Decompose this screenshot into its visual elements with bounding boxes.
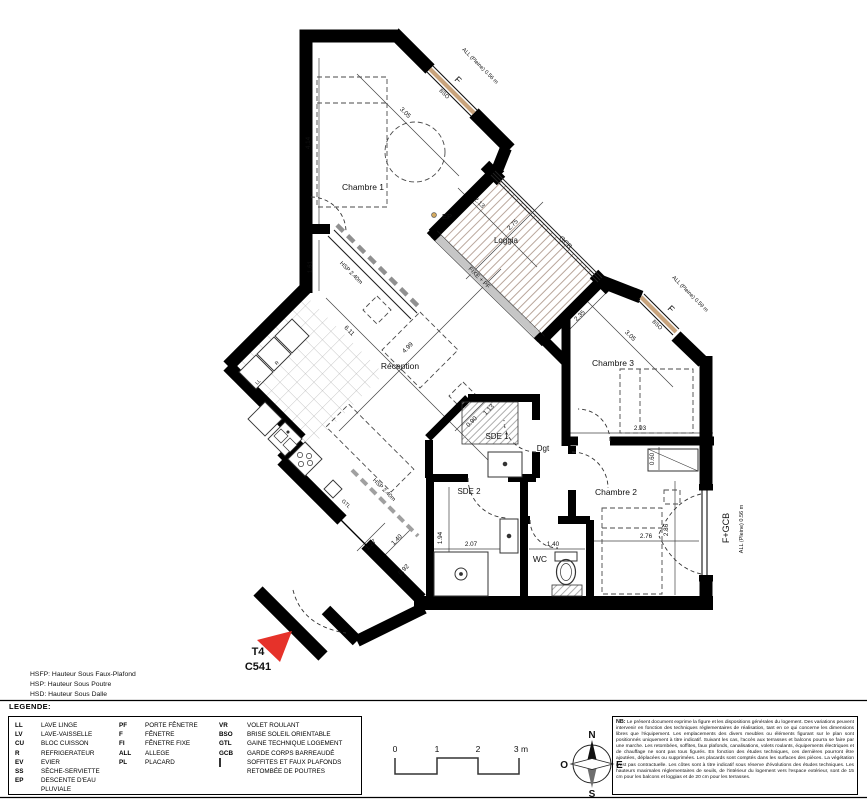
room-label-sde1: SDE 1 [485,432,509,441]
entry-door-threshold [341,520,366,545]
scale-tick-0: 0 [393,744,398,754]
chair-chambre1 [385,122,445,182]
legend-abbr: FI [119,739,145,748]
bed-chambre3 [620,369,693,433]
legend-label: FÊNETRE FIXE [145,739,190,748]
legend-label: SÈCHE-SERVIETTE [41,767,100,776]
wall-sw-4 [366,544,421,599]
legend-abbr: SS [15,767,41,776]
bed-chambre2 [602,508,662,594]
legend-row: SSSÈCHE-SERVIETTE [15,767,119,776]
chambre1-opening [328,225,420,319]
legend-row: SOFFITES ET FAUX PLAFONDS [219,758,361,767]
dim: 1.40 [390,533,404,547]
soffites-swatch [219,758,247,767]
dim: 2.93 [634,425,647,432]
legend-abbr: PF [119,721,145,730]
dim: 4.14 [305,136,312,149]
legend-row: PLPLACARD [119,758,219,767]
legend-abbr: EP [15,776,41,785]
hsd-note: HSD: Hauteur Sous Dalle [30,691,107,698]
room-label-reception: Réception [381,361,420,371]
chair-1 [363,296,391,324]
legend-label: BLOC CUISSON [41,739,89,748]
ep-label: EP [442,212,452,221]
toilet-wc [555,552,577,585]
legend-label: DESCENTE D'EAU [41,776,96,785]
window-label-f1: F [453,74,464,85]
room-label-chambre2: Chambre 2 [595,487,637,497]
legend-abbr: R [15,749,41,758]
legend-label: PLUVIALE [41,785,71,794]
bso-label-2: BSO [650,319,663,332]
allege-label-ch3: ALL (Pleine) 0.59 m [670,275,709,314]
dim: 0.92 [397,563,411,577]
legend-row: CUBLOC CUISSON [15,739,119,748]
legend-label: ALLEGE [145,749,170,758]
floorplan-drawing: Chambre 1 Loggia Réception Chambre 3 SDE… [0,0,867,800]
compass-s: S [589,789,596,800]
legend-row: GTLGAINE TECHNIQUE LOGEMENT [219,739,361,748]
allege-label-top: ALL (Pleine) 0.56 m [460,47,499,86]
dim: 3.05 [398,106,412,120]
legend-label: PLACARD [145,758,175,767]
legend-row: EPDESCENTE D'EAU [15,776,119,785]
unit-number: C541 [245,661,271,673]
legend-abbr: F [119,730,145,739]
room-label-dgt: Dgt [537,444,550,453]
nb-note-box: NB: Le présent document exprime la figur… [612,716,858,795]
legend-label: SOFFITES ET FAUX PLAFONDS [247,758,341,767]
dim: 3.05 [623,329,637,343]
compass-o: O [560,760,568,771]
legend-abbr: GCB [219,749,247,758]
legend-row: PFPORTE FÊNETRE [119,721,219,730]
legend-label: GARDE CORPS BARREAUDÉ [247,749,334,758]
legend-title: LEGENDE: [9,702,51,711]
wc-vent [552,585,582,596]
scale-tick-2: 2 [476,744,481,754]
legend-label: GAINE TECHNIQUE LOGEMENT [247,739,342,748]
dim: 1.94 [437,531,444,544]
legend-label: BRISE SOLEIL ORIENTABLE [247,730,331,739]
legend-row: LVLAVE-VAISSELLE [15,730,119,739]
legend-column-3: VRVOLET ROULANT BSOBRISE SOLEIL ORIENTAB… [219,721,361,795]
legend-column-1: LLLAVE LINGE LVLAVE-VAISSELLE CUBLOC CUI… [15,721,119,795]
legend-row: FFÊNETRE [119,730,219,739]
dim: 0.60 [649,452,656,465]
nb-text: Le présent document exprime la figure et… [616,720,854,780]
compass-n: N [588,730,595,741]
gtl-box [324,480,342,498]
nb-prefix: NB: [616,719,626,725]
legend-abbr: CU [15,739,41,748]
dim: 2.76 [640,533,653,540]
legend-abbr: LL [15,721,41,730]
legend-row: ALLALLEGE [119,749,219,758]
legend-abbr: EV [15,758,41,767]
legend-row: PLUVIALE [15,785,119,794]
dim: 1.61 [307,260,314,273]
unit-type: T4 [252,646,266,658]
beam-soffite-entry [352,470,418,536]
legend-row: RETOMBÉE DE POUTRES [219,767,361,776]
compass-needle-ew [571,759,613,770]
legend-label: REFRIGERATEUR [41,749,94,758]
window-label-f2: F [666,303,677,314]
legend-row: FIFÊNETRE FIXE [119,739,219,748]
nightstand [664,490,680,504]
hs-notes: HSFP: Hauteur Sous Faux-Plafond HSP: Hau… [30,671,136,698]
scale-bar: 0 1 2 3 m [393,744,528,774]
legend-label: LAVE-VAISSELLE [41,730,92,739]
ep-downpipe-symbol [432,213,437,218]
allege-label-right: ALL (Pleine) 0.56 m [739,504,745,553]
dim: 2.07 [465,541,478,548]
window-chambre1 [427,66,477,116]
legend-abbr: GTL [219,739,247,748]
legend-row: VRVOLET ROULANT [219,721,361,730]
room-label-wc: WC [533,554,547,564]
legend-abbr: BSO [219,730,247,739]
gtl-label: GTL [340,499,351,510]
window-label-fgcb: F+GCB [721,513,731,543]
dim: HSP 2.40m [338,261,363,286]
scale-tick-3: 3 m [514,744,528,754]
scale-tick-1: 1 [435,744,440,754]
window-chambre2 [699,484,713,582]
legend-row: BSOBRISE SOLEIL ORIENTABLE [219,730,361,739]
legend-label: FÊNETRE [145,730,174,739]
legend-label: LAVE LINGE [41,721,77,730]
wall-left-top [306,36,397,293]
legend-row: RREFRIGERATEUR [15,749,119,758]
hsfp-note: HSFP: Hauteur Sous Faux-Plafond [30,671,136,678]
legend-row: GCBGARDE CORPS BARREAUDÉ [219,749,361,758]
floorplan-page: Chambre 1 Loggia Réception Chambre 3 SDE… [0,0,867,800]
legend-label: EVIER [41,758,60,767]
legend-abbr: ALL [119,749,145,758]
unit-tag: T4 C541 [245,631,292,673]
dim: 2.86 [663,523,670,536]
legend-label: RETOMBÉE DE POUTRES [247,767,325,776]
dim: 4.99 [401,341,415,355]
room-label-chambre1: Chambre 1 [342,182,384,192]
dim: 1.40 [547,541,560,548]
legend-label: VOLET ROULANT [247,721,299,730]
legend-label: PORTE FÊNETRE [145,721,198,730]
legend-abbr [15,785,41,794]
door-chambre2 [572,452,608,488]
room-label-chambre3: Chambre 3 [592,358,634,368]
poutre-swatch [219,767,247,776]
room-label-sde2: SDE 2 [457,487,481,496]
door-chambre3 [578,409,610,441]
legend-row: LLLAVE LINGE [15,721,119,730]
legend-box: LLLAVE LINGE LVLAVE-VAISSELLE CUBLOC CUI… [8,716,362,795]
legend-row: EVEVIER [15,758,119,767]
legend-abbr: VR [219,721,247,730]
door-sde2 [468,478,508,518]
legend-abbr: LV [15,730,41,739]
legend-column-2: PFPORTE FÊNETRE FFÊNETRE FIFÊNETRE FIXE … [119,721,219,795]
hsp-note: HSP: Hauteur Sous Poutre [30,681,111,688]
legend-abbr: PL [119,758,145,767]
room-label-loggia: Loggia [494,236,519,245]
